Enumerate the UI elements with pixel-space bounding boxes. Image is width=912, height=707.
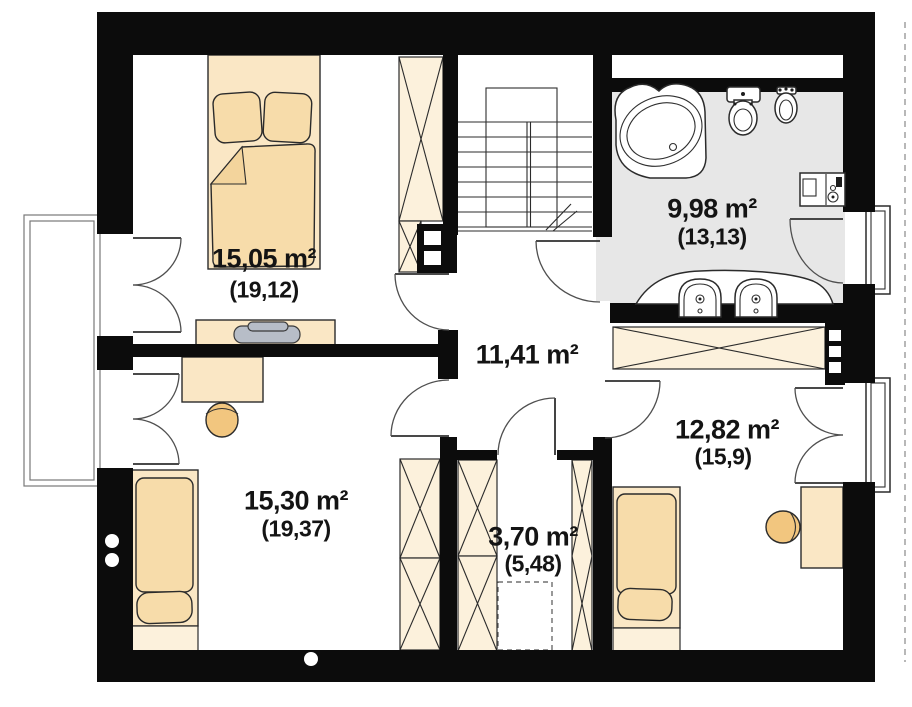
bathroom-gross-label: (13,13) [677,224,746,251]
door-bedroom1 [395,274,449,330]
window-frame-bathroom [866,206,890,294]
balcony-door-bedroom3 [795,388,843,483]
bedroom3-gross-label: (15,9) [694,444,751,471]
closet-gross-label: (5,48) [504,551,561,578]
balcony-door-bedroom2 [133,374,179,464]
closet-area-label: 3,70 m² [488,522,578,553]
bedroom1-gross-label: (19,12) [229,277,298,304]
bathtub [609,84,712,179]
staircase [458,88,592,231]
wardrobe-closet-right [572,460,592,651]
bedroom2-area-label: 15,30 m² [244,486,348,517]
single-bed-bedroom2 [131,470,198,651]
hallway-area-label: 11,41 m² [476,340,579,371]
door-bedroom2 [391,380,449,436]
door-bathroom [536,241,600,302]
balcony-door-bedroom1 [133,238,181,332]
single-bed-bedroom3 [613,487,680,651]
bidet [775,87,797,123]
door-bedroom3 [605,381,660,438]
stool-bedroom2 [206,403,238,437]
floor-plan: 15,05 m² (19,12) 9,98 m² (13,13) 11,41 m… [0,0,912,707]
double-bed [208,55,320,269]
desk-bedroom3 [801,487,843,568]
bathroom-area-label: 9,98 m² [667,194,757,225]
bathroom-door-floor [596,237,612,301]
balcony [24,215,100,486]
wardrobe-closet-left [458,460,497,651]
desk-bedroom1 [196,320,335,348]
window-frame-bedroom3 [866,378,890,492]
wardrobe-bedroom2 [400,459,440,650]
toilet [727,87,760,135]
door-closet [498,398,555,455]
wardrobe-bedroom3 [613,327,825,369]
stool-bedroom3 [766,511,800,543]
bedroom1-area-label: 15,05 m² [212,244,316,275]
washing-machine [800,173,845,206]
closet-dashed-area [498,582,552,650]
desk-bedroom2 [182,357,263,402]
bedroom2-gross-label: (19,37) [261,516,330,543]
floor-plan-canvas [0,0,912,707]
bedroom3-area-label: 12,82 m² [675,415,779,446]
